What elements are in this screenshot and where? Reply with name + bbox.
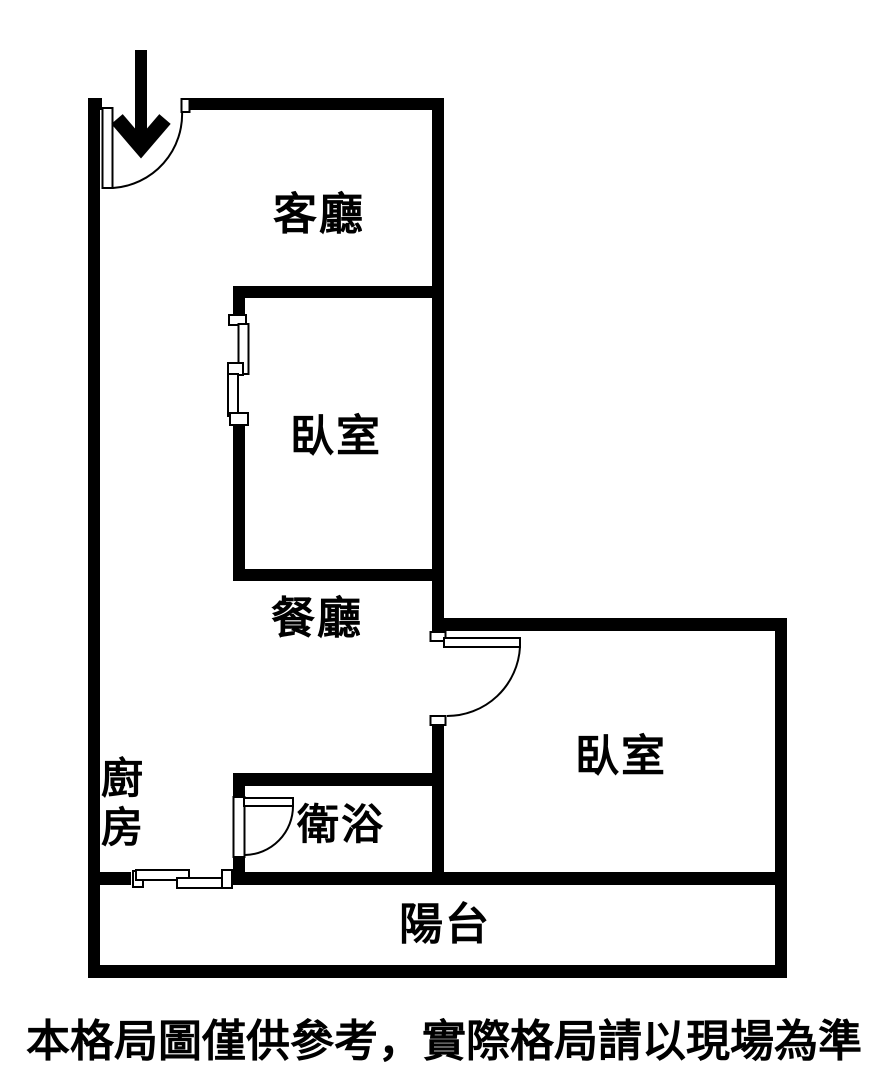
wall-top-corner [88, 98, 102, 110]
wall-right-outer [775, 618, 787, 978]
bathroom-door-icon [234, 797, 294, 857]
wall-main-vertical-upper [432, 98, 444, 633]
wall-bedroom1-bottom [233, 569, 444, 581]
bathroom-door-arc [245, 806, 293, 855]
wall-balcony-top-left [88, 872, 133, 885]
entrance-door-stop [182, 99, 190, 112]
bedroom2-door-icon [431, 632, 521, 725]
wall-bedroom1-top [233, 286, 444, 298]
balcony-label: 陽台 [399, 903, 491, 947]
wall-bedroom2-top [432, 618, 787, 631]
entrance-arrow-icon [117, 50, 165, 147]
bathroom-label: 衛浴 [297, 804, 385, 846]
wall-top [182, 98, 444, 110]
dining-room-label: 餐廳 [271, 597, 363, 641]
bedroom2-door-leaf [444, 638, 520, 647]
wall-bottom-outer [88, 965, 787, 978]
bedroom2-door-arc [447, 647, 520, 716]
bathroom-door-leaf [244, 798, 293, 806]
disclaimer-text: 本格局圖僅供參考，實際格局請以現場為準 [26, 1005, 862, 1066]
wall-bathroom-top [233, 773, 444, 786]
kitchen-label: 廚房 [99, 754, 145, 852]
bedroom-main-label: 臥室 [290, 415, 382, 459]
wall-main-vertical-lower [432, 725, 444, 885]
bedroom-second-label: 臥室 [575, 735, 667, 779]
wall-balcony-top-right [230, 872, 787, 885]
bedroom2-door-stop-bottom [431, 716, 446, 725]
floor-plan: 客廳 臥室 餐廳 廚房 衛浴 臥室 陽台 本格局圖僅供參考，實際格局請以現場為準 [0, 0, 889, 1066]
bedroom1-window-icon [226, 314, 250, 426]
living-room-label: 客廳 [273, 193, 365, 237]
wall-bathroom-left-upper [233, 773, 245, 799]
entrance-door-leaf [103, 108, 113, 188]
balcony-sliding-door-icon [131, 869, 233, 889]
bathroom-door-frame [234, 797, 245, 857]
